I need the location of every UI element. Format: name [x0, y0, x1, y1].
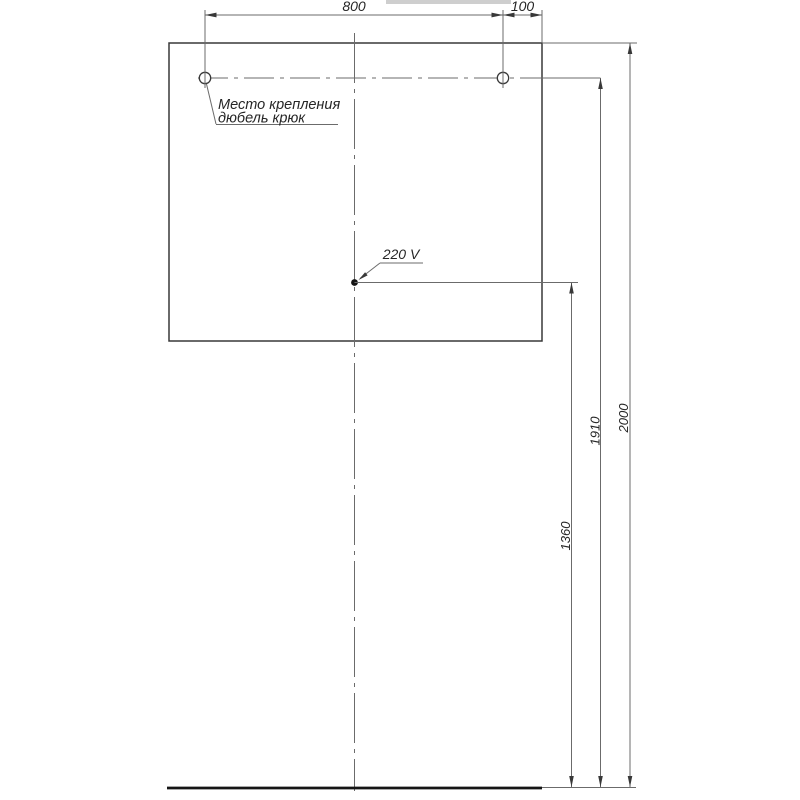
top-edge-artifact	[386, 0, 511, 4]
dim-2000-label: 2000	[616, 403, 631, 434]
arrowhead	[569, 776, 574, 787]
mount-note-leader	[207, 84, 217, 124]
arrowhead	[492, 13, 504, 18]
arrowhead	[569, 283, 574, 294]
dim-800-label: 800	[342, 0, 366, 14]
arrowhead	[205, 13, 217, 18]
arrowhead	[628, 776, 633, 787]
dim-100-label: 100	[511, 0, 535, 14]
mirror-outline	[169, 43, 542, 341]
outlet-label: 220 V	[382, 246, 421, 262]
arrowhead	[628, 43, 633, 54]
arrowhead	[598, 78, 603, 89]
technical-drawing-page: 800 100 Место крепления дюбель крюк 220 …	[0, 0, 800, 800]
arrowhead	[598, 776, 603, 787]
dim-1360-label: 1360	[558, 521, 573, 551]
dim-1910-label: 1910	[588, 416, 603, 446]
installation-diagram: 800 100 Место крепления дюбель крюк 220 …	[0, 0, 800, 800]
mount-note-line2: дюбель крюк	[218, 111, 306, 127]
